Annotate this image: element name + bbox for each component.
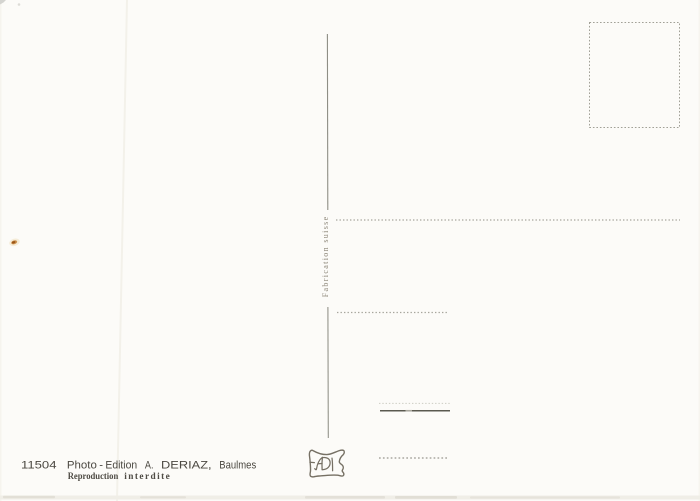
svg-text:11504: 11504	[21, 460, 57, 472]
svg-text:DERIAZ,: DERIAZ,	[161, 460, 212, 472]
svg-text:Baulmes: Baulmes	[219, 460, 256, 472]
svg-text:Edition: Edition	[105, 460, 137, 472]
svg-text:A.: A.	[145, 460, 154, 472]
svg-text:Fabrication suisse: Fabrication suisse	[321, 215, 330, 297]
svg-text:interdite: interdite	[124, 472, 170, 482]
svg-text:Photo: Photo	[67, 460, 97, 472]
svg-text:-: -	[99, 460, 103, 472]
svg-text:Reproduction: Reproduction	[68, 472, 119, 482]
